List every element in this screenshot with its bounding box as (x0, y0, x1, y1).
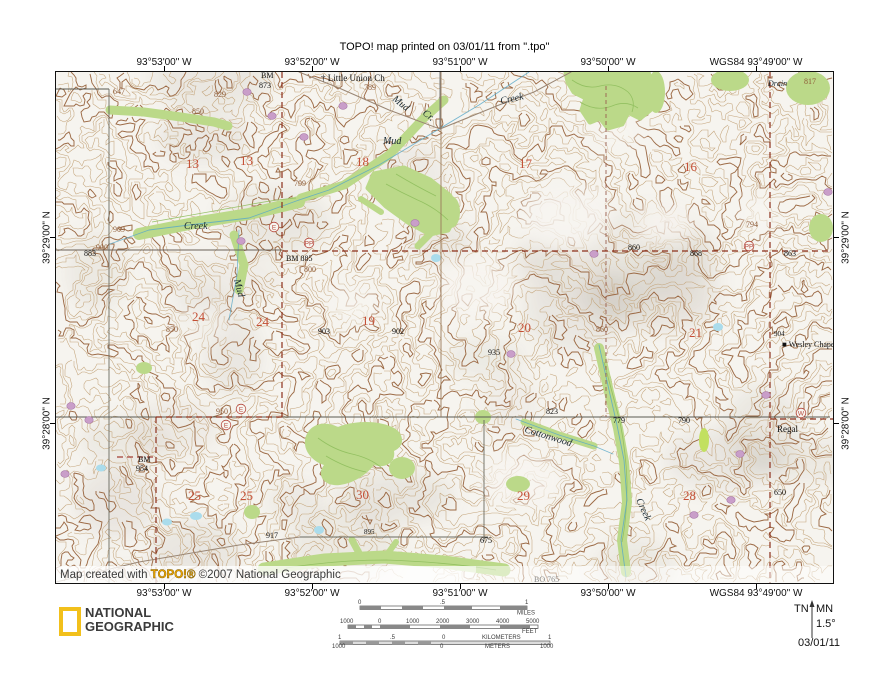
svg-text:650: 650 (774, 488, 786, 497)
svg-text:1000: 1000 (406, 619, 420, 625)
svg-text:909: 909 (113, 225, 125, 234)
svg-text:20: 20 (518, 320, 531, 335)
svg-text:BM 885: BM 885 (286, 254, 312, 263)
svg-text:3000: 3000 (466, 619, 480, 625)
svg-text:1: 1 (548, 635, 552, 641)
svg-text:FEET: FEET (522, 629, 538, 635)
svg-text:18: 18 (356, 154, 369, 169)
svg-text:799: 799 (294, 179, 306, 188)
svg-text:MILES: MILES (517, 611, 535, 617)
svg-text:935: 935 (488, 348, 500, 357)
svg-text:675: 675 (480, 536, 492, 545)
svg-text:METERS: METERS (485, 644, 510, 650)
svg-text:860: 860 (628, 243, 640, 252)
svg-text:E: E (239, 407, 244, 414)
svg-text:BM: BM (138, 455, 150, 464)
svg-text:Map created with TOPO!® ©2007: Map created with TOPO!® ©2007 National G… (60, 569, 341, 581)
svg-text:823: 823 (546, 407, 558, 416)
svg-text:19: 19 (362, 313, 375, 328)
svg-text:873: 873 (259, 81, 271, 90)
svg-text:0: 0 (440, 644, 444, 650)
svg-text:E: E (224, 423, 229, 430)
svg-text:E: E (272, 225, 277, 232)
svg-text:790: 790 (678, 416, 690, 425)
svg-text:Regal: Regal (777, 424, 798, 434)
svg-text:0: 0 (378, 619, 382, 625)
svg-text:29: 29 (517, 488, 530, 503)
svg-text:5000: 5000 (526, 619, 540, 625)
svg-text:PP: PP (745, 244, 754, 251)
svg-text:850: 850 (166, 325, 178, 334)
svg-text:817: 817 (804, 77, 816, 86)
svg-text:904: 904 (774, 330, 785, 338)
svg-text:1000: 1000 (340, 619, 354, 625)
svg-text:868: 868 (690, 249, 702, 258)
svg-text:25: 25 (188, 488, 201, 503)
svg-text:W: W (798, 411, 805, 418)
svg-text:860: 860 (596, 325, 608, 334)
svg-text:789: 789 (364, 83, 376, 92)
svg-text:Creek: Creek (184, 221, 208, 232)
svg-text:24: 24 (256, 314, 270, 329)
svg-text:Mud: Mud (382, 136, 402, 147)
svg-text:1: 1 (338, 635, 342, 641)
svg-text:0: 0 (358, 600, 362, 606)
svg-text:902: 902 (392, 327, 404, 336)
svg-text:13: 13 (186, 156, 199, 171)
svg-text:17: 17 (519, 156, 533, 171)
svg-text:† Little Union Ch: † Little Union Ch (321, 73, 385, 83)
svg-text:24: 24 (192, 309, 206, 324)
svg-text:TN: TN (794, 603, 809, 615)
svg-text:917: 917 (266, 531, 278, 540)
svg-text:954: 954 (136, 464, 148, 473)
svg-text:800: 800 (304, 265, 316, 274)
svg-text:863: 863 (784, 249, 796, 258)
svg-text:829: 829 (214, 90, 226, 99)
svg-text:903: 903 (318, 327, 330, 336)
svg-text:16: 16 (684, 159, 698, 174)
svg-text:■ Wesley Chapel: ■ Wesley Chapel (782, 340, 833, 349)
svg-text:KILOMETERS: KILOMETERS (482, 635, 521, 641)
svg-text:950: 950 (216, 407, 228, 416)
svg-text:Drain: Drain (767, 79, 787, 88)
svg-text:2000: 2000 (436, 619, 450, 625)
svg-text:13: 13 (240, 153, 253, 168)
svg-text:28: 28 (683, 488, 696, 503)
svg-text:21: 21 (689, 325, 702, 340)
svg-text:850: 850 (192, 107, 204, 116)
svg-text:.5: .5 (390, 635, 396, 641)
svg-text:895: 895 (364, 528, 375, 536)
svg-text:1: 1 (525, 600, 529, 606)
svg-text:647: 647 (113, 87, 125, 96)
svg-text:900: 900 (96, 243, 108, 252)
svg-text:1000: 1000 (332, 644, 346, 650)
svg-text:30: 30 (356, 487, 369, 502)
svg-text:0: 0 (442, 635, 446, 641)
svg-text:779: 779 (613, 416, 625, 425)
svg-text:1.5°: 1.5° (816, 618, 836, 630)
svg-text:.5: .5 (440, 600, 446, 606)
svg-text:1000: 1000 (540, 644, 554, 650)
svg-text:4000: 4000 (496, 619, 510, 625)
svg-text:PP: PP (305, 241, 314, 248)
svg-text:794: 794 (746, 220, 758, 229)
svg-text:883: 883 (84, 249, 96, 258)
svg-text:BM: BM (261, 72, 273, 80)
svg-text:MN: MN (816, 603, 833, 615)
svg-text:25: 25 (240, 488, 253, 503)
